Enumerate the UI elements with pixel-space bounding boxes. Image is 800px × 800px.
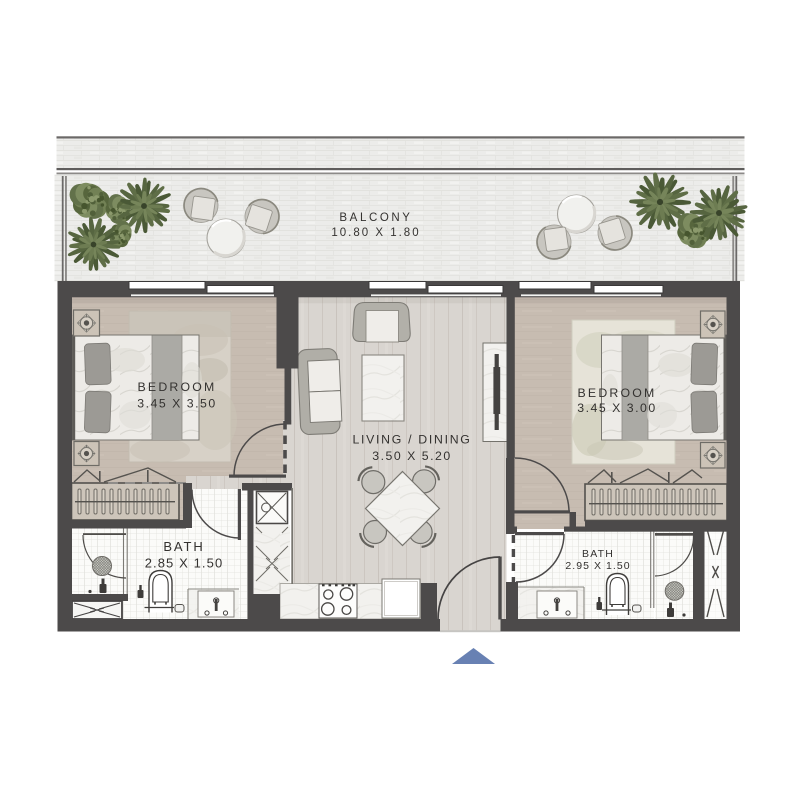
- svg-text:2.85 X 1.50: 2.85 X 1.50: [145, 556, 224, 571]
- svg-text:BATH: BATH: [582, 548, 614, 560]
- svg-text:BEDROOM: BEDROOM: [138, 380, 217, 394]
- svg-text:10.80 X 1.80: 10.80 X 1.80: [331, 227, 420, 239]
- svg-text:3.50 X 5.20: 3.50 X 5.20: [372, 449, 451, 463]
- svg-text:3.45 X 3.50: 3.45 X 3.50: [137, 397, 216, 411]
- svg-text:LIVING / DINING: LIVING / DINING: [352, 433, 471, 447]
- svg-text:BATH: BATH: [163, 539, 204, 554]
- svg-text:3.45 X 3.00: 3.45 X 3.00: [577, 401, 656, 415]
- svg-text:BALCONY: BALCONY: [339, 212, 412, 224]
- svg-text:2.95 X 1.50: 2.95 X 1.50: [565, 560, 630, 572]
- svg-text:BEDROOM: BEDROOM: [578, 386, 657, 400]
